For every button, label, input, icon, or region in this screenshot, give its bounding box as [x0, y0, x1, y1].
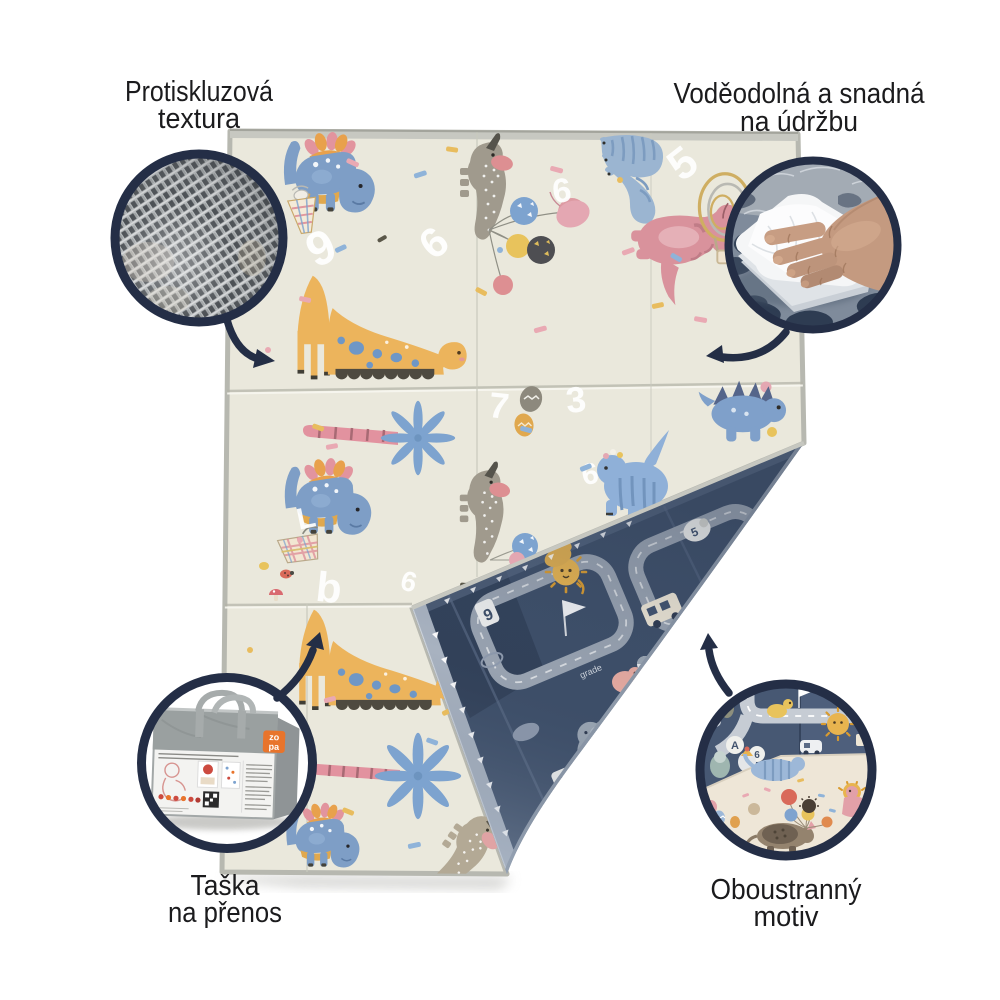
- svg-text:A: A: [731, 740, 739, 752]
- svg-text:7: 7: [487, 384, 511, 427]
- svg-text:textura: textura: [158, 103, 240, 135]
- svg-text:motiv: motiv: [754, 901, 820, 933]
- svg-text:na údržbu: na údržbu: [740, 106, 858, 138]
- svg-text:b: b: [314, 563, 344, 612]
- svg-text:pa: pa: [268, 742, 280, 752]
- svg-text:3: 3: [564, 378, 588, 421]
- svg-text:na přenos: na přenos: [168, 897, 282, 929]
